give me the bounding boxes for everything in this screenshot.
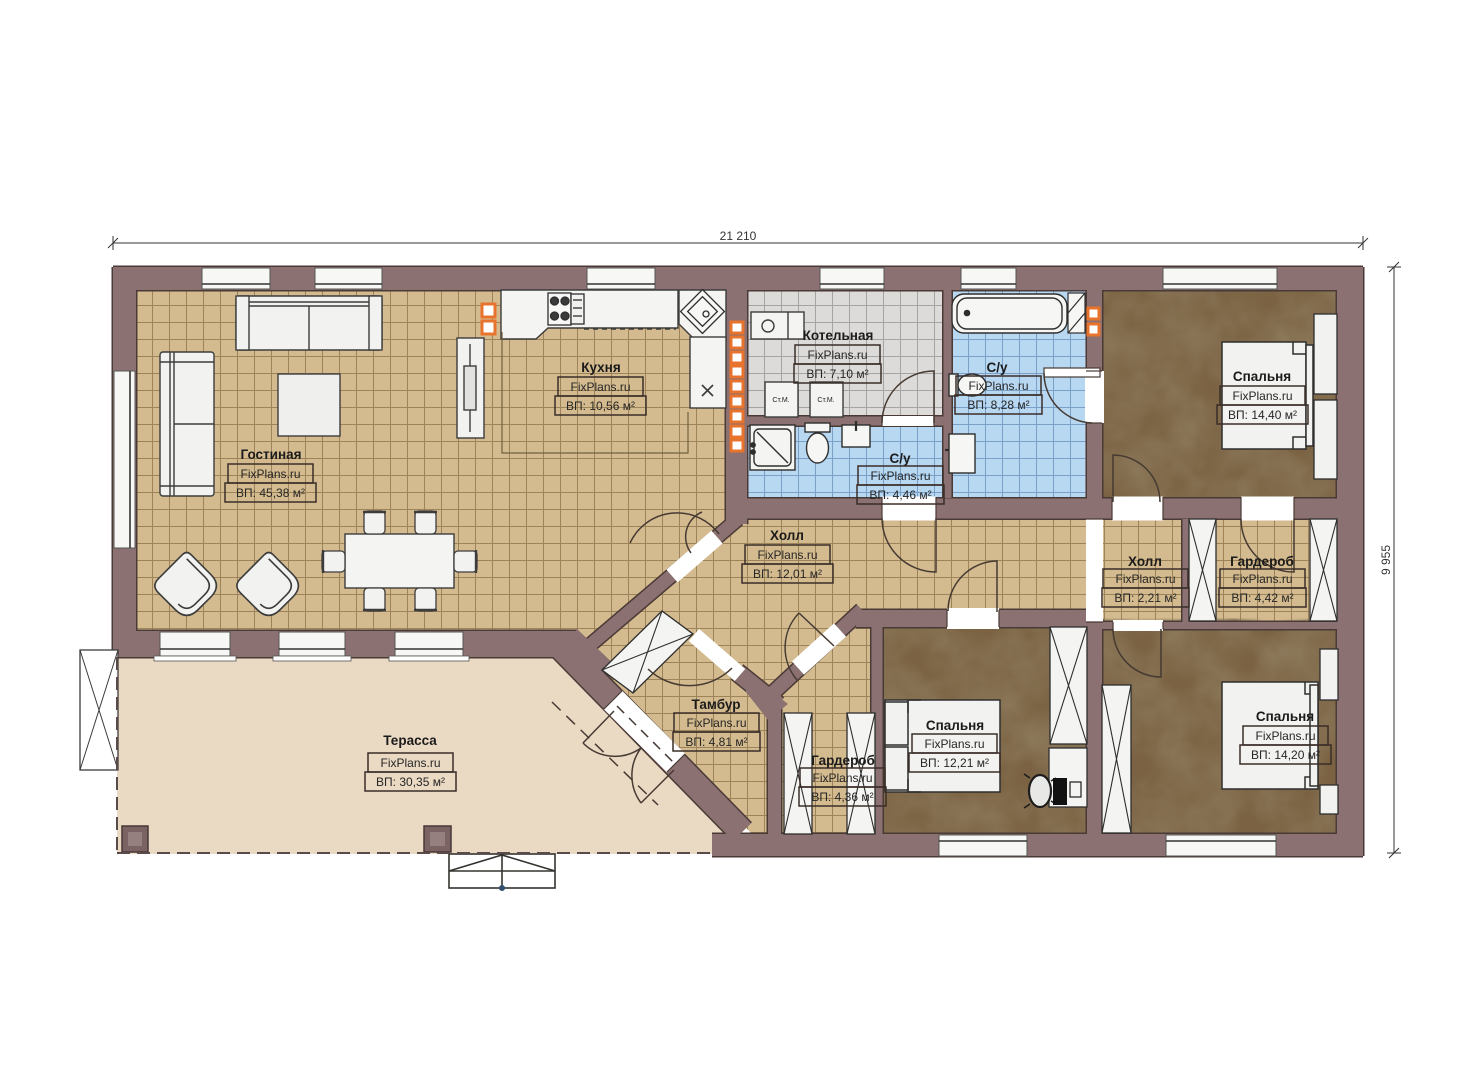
svg-text:ВП: 4,42 м²: ВП: 4,42 м² bbox=[1231, 591, 1293, 605]
svg-text:ВП: 2,21 м²: ВП: 2,21 м² bbox=[1114, 591, 1176, 605]
svg-text:С/у: С/у bbox=[889, 451, 911, 466]
svg-text:Котельная: Котельная bbox=[803, 328, 874, 343]
svg-text:FixPlans.ru: FixPlans.ru bbox=[1255, 729, 1315, 743]
svg-text:Кухня: Кухня bbox=[581, 360, 620, 375]
svg-text:ВП: 14,40 м²: ВП: 14,40 м² bbox=[1228, 408, 1297, 422]
svg-text:FixPlans.ru: FixPlans.ru bbox=[1232, 389, 1292, 403]
svg-text:FixPlans.ru: FixPlans.ru bbox=[1232, 572, 1292, 586]
svg-text:Терасса: Терасса bbox=[383, 733, 437, 748]
svg-text:FixPlans.ru: FixPlans.ru bbox=[686, 716, 746, 730]
svg-text:9 955: 9 955 bbox=[1379, 545, 1393, 575]
svg-text:Холл: Холл bbox=[770, 528, 804, 543]
svg-text:Гардероб: Гардероб bbox=[811, 753, 875, 768]
svg-text:Гостиная: Гостиная bbox=[240, 447, 301, 462]
svg-text:ВП: 10,56 м²: ВП: 10,56 м² bbox=[566, 399, 635, 413]
svg-text:Спальня: Спальня bbox=[926, 718, 984, 733]
svg-text:ВП: 4,46 м²: ВП: 4,46 м² bbox=[869, 488, 931, 502]
svg-text:ВП: 12,21 м²: ВП: 12,21 м² bbox=[920, 756, 989, 770]
svg-text:ВП: 12,01 м²: ВП: 12,01 м² bbox=[753, 567, 822, 581]
svg-text:Ст.М.: Ст.М. bbox=[772, 397, 789, 404]
svg-text:FixPlans.ru: FixPlans.ru bbox=[924, 737, 984, 751]
svg-text:ВП: 4,36 м²: ВП: 4,36 м² bbox=[811, 790, 873, 804]
svg-text:21 210: 21 210 bbox=[720, 229, 757, 243]
svg-text:FixPlans.ru: FixPlans.ru bbox=[870, 469, 930, 483]
svg-text:FixPlans.ru: FixPlans.ru bbox=[240, 467, 300, 481]
svg-text:Тамбур: Тамбур bbox=[692, 697, 741, 712]
svg-text:Холл: Холл bbox=[1128, 554, 1162, 569]
svg-text:ВП: 7,10 м²: ВП: 7,10 м² bbox=[806, 367, 868, 381]
svg-text:Ст.М.: Ст.М. bbox=[817, 397, 834, 404]
svg-text:Спальня: Спальня bbox=[1233, 369, 1291, 384]
svg-text:FixPlans.ru: FixPlans.ru bbox=[570, 380, 630, 394]
svg-text:FixPlans.ru: FixPlans.ru bbox=[812, 771, 872, 785]
svg-text:ВП: 30,35 м²: ВП: 30,35 м² bbox=[376, 775, 445, 789]
svg-text:ВП: 8,28 м²: ВП: 8,28 м² bbox=[967, 398, 1029, 412]
svg-text:ВП: 14,20 м²: ВП: 14,20 м² bbox=[1251, 748, 1320, 762]
svg-text:Спальня: Спальня bbox=[1256, 709, 1314, 724]
svg-text:ВП: 45,38 м²: ВП: 45,38 м² bbox=[236, 486, 305, 500]
svg-text:FixPlans.ru: FixPlans.ru bbox=[757, 548, 817, 562]
svg-text:FixPlans.ru: FixPlans.ru bbox=[807, 348, 867, 362]
svg-text:FixPlans.ru: FixPlans.ru bbox=[380, 756, 440, 770]
svg-text:Гардероб: Гардероб bbox=[1230, 554, 1294, 569]
svg-text:С/у: С/у bbox=[986, 360, 1008, 375]
svg-text:ВП: 4,81 м²: ВП: 4,81 м² bbox=[685, 735, 747, 749]
svg-text:FixPlans.ru: FixPlans.ru bbox=[1115, 572, 1175, 586]
svg-text:FixPlans.ru: FixPlans.ru bbox=[968, 379, 1028, 393]
